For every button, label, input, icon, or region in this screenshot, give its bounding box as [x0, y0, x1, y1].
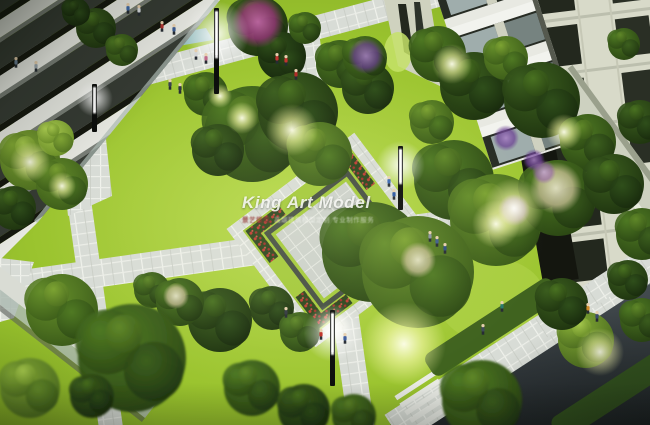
tree-clump [622, 39, 640, 57]
figurine-body [284, 310, 287, 315]
figurine-head [126, 3, 129, 6]
light-glow [208, 84, 232, 108]
figurine-body [178, 86, 181, 91]
tree-highlight [143, 276, 156, 289]
tree-highlight [631, 302, 646, 317]
person-figurine [586, 303, 589, 314]
figurine-head [443, 243, 446, 246]
figurine-body [160, 24, 163, 29]
tree-highlight [434, 148, 462, 176]
tree-clump [124, 342, 183, 401]
figurine-head [428, 231, 431, 234]
figurine-head [294, 69, 297, 72]
scale-model-photo: King Art Model 景艺模型高端建筑模型定制 专业制作服务 [0, 0, 650, 425]
person-figurine [204, 53, 207, 64]
tree-clump [364, 80, 393, 109]
tree [0, 358, 60, 418]
light-glow [266, 104, 318, 156]
lamp-light-core [399, 150, 401, 182]
figurine-legs [179, 91, 182, 94]
tree-clump [215, 310, 250, 345]
figurine-head [204, 53, 207, 56]
tree-highlight [47, 124, 60, 137]
tree-highlight [618, 264, 632, 278]
tree-highlight [205, 129, 223, 147]
tree-highlight [523, 70, 550, 97]
tree-highlight [15, 364, 36, 385]
tree-clump [214, 142, 243, 171]
figurine-body [294, 72, 297, 77]
person-figurine [319, 329, 322, 340]
person-figurine [387, 176, 390, 187]
figurine-body [284, 58, 287, 63]
figurine-head [178, 83, 181, 86]
blossom-purple [348, 38, 384, 74]
tree-highlight [204, 294, 226, 316]
person-figurine [294, 69, 297, 80]
person-figurine [194, 49, 197, 60]
figurine-legs [295, 77, 298, 80]
person-figurine [168, 79, 171, 90]
person-figurine [14, 57, 17, 68]
figurine-legs [285, 315, 288, 318]
figurine-legs [429, 239, 432, 242]
figurine-body [204, 56, 207, 61]
tree-highlight [261, 290, 276, 305]
figurine-body [443, 246, 446, 251]
figurine-body [194, 52, 197, 57]
figurine-body [137, 8, 140, 13]
figurine-legs [169, 87, 172, 90]
figurine-head [343, 333, 346, 336]
light-glow [10, 142, 50, 182]
tree-clump [53, 133, 73, 153]
figurine-body [392, 192, 395, 197]
figurine-head [481, 324, 484, 327]
blossom-cream [163, 283, 189, 309]
figurine-head [275, 53, 278, 56]
figurine-body [428, 234, 431, 239]
figurine-head [172, 24, 175, 27]
tree-clump [89, 389, 113, 413]
person-figurine [178, 83, 181, 94]
figurine-head [319, 329, 322, 332]
tree-highlight [421, 104, 436, 119]
person-figurine [284, 307, 287, 318]
figurine-legs [596, 319, 599, 322]
figurine-head [284, 55, 287, 58]
figurine-head [392, 189, 395, 192]
figurine-legs [205, 61, 208, 64]
lamp-light-core [215, 12, 217, 55]
figurine-body [172, 27, 175, 32]
tree-highlight [343, 398, 358, 413]
tree-highlight [616, 31, 627, 42]
person-figurine [392, 189, 395, 200]
person-figurine [443, 243, 446, 254]
light-glow [362, 302, 446, 386]
figurine-legs [344, 341, 347, 344]
figurine-body [586, 306, 589, 311]
tree-highlight [3, 190, 18, 205]
figurine-head [435, 236, 438, 239]
tree-clump [278, 49, 304, 75]
figurine-legs [285, 63, 288, 66]
tree-clump [469, 76, 506, 113]
person-figurine [595, 311, 598, 322]
light-glow [48, 172, 76, 200]
figurine-head [595, 311, 598, 314]
light-glow [472, 200, 520, 248]
figurine-legs [388, 184, 391, 187]
tree-clump [74, 8, 89, 23]
tree-highlight [44, 281, 69, 306]
person-figurine [428, 231, 431, 242]
tree-clump [26, 379, 59, 412]
tree-highlight [81, 378, 96, 393]
tree-highlight [495, 40, 510, 55]
tree-clump [248, 380, 279, 411]
figurine-head [387, 176, 390, 179]
figurine-body [595, 314, 598, 319]
person-figurine [343, 333, 346, 344]
person-figurine [500, 301, 503, 312]
tree-highlight [69, 1, 79, 11]
blossom-cream [400, 242, 436, 278]
figurine-head [14, 57, 17, 60]
tree-clump [315, 144, 350, 179]
tree-highlight [238, 366, 258, 386]
tree-highlight [195, 76, 210, 91]
figurine-body [14, 60, 17, 65]
tree-highlight [291, 389, 309, 407]
figurine-body [168, 82, 171, 87]
figurine-legs [482, 332, 485, 335]
figurine-head [194, 49, 197, 52]
figurine-legs [35, 69, 38, 72]
figurine-legs [436, 244, 439, 247]
tree-highlight [629, 213, 647, 231]
figurine-legs [161, 29, 164, 32]
figurine-head [500, 301, 503, 304]
tree-clump [120, 45, 138, 63]
tree-clump [11, 201, 35, 225]
figurine-body [435, 239, 438, 244]
lamp-light-core [331, 314, 333, 352]
figurine-body [275, 56, 278, 61]
figurine-head [284, 307, 287, 310]
light-glow [546, 114, 582, 150]
tree-highlight [114, 37, 125, 48]
figurine-legs [276, 61, 279, 64]
figurine-head [586, 303, 589, 306]
model-scene-svg [0, 0, 650, 425]
figurine-body [319, 332, 322, 337]
light-glow [432, 44, 472, 84]
tree-highlight [105, 315, 143, 353]
figurine-legs [501, 309, 504, 312]
figurine-body [126, 6, 129, 11]
figurine-body [500, 304, 503, 309]
light-glow [576, 328, 624, 376]
tree-highlight [599, 160, 620, 181]
figurine-body [481, 327, 484, 332]
tree-clump [303, 23, 321, 41]
figurine-legs [195, 57, 198, 60]
figurine-legs [127, 11, 130, 14]
tree-clump [558, 296, 587, 325]
person-figurine [34, 61, 37, 72]
tree-clump [625, 274, 647, 296]
blossom-purple [493, 125, 519, 151]
figurine-legs [15, 65, 18, 68]
person-figurine [126, 3, 129, 14]
figurine-legs [138, 13, 141, 16]
blossom-lilac [532, 160, 556, 184]
figurine-legs [444, 251, 447, 254]
figurine-body [343, 336, 346, 341]
tree-highlight [629, 104, 644, 119]
tree-clump [429, 115, 453, 139]
figurine-legs [587, 311, 590, 314]
person-figurine [172, 24, 175, 35]
figurine-body [387, 179, 390, 184]
figurine-legs [393, 197, 396, 200]
figurine-body [34, 64, 37, 69]
tree-highlight [278, 80, 306, 108]
person-figurine [284, 55, 287, 66]
figurine-legs [320, 337, 323, 340]
figurine-legs [173, 32, 176, 35]
tree-highlight [462, 368, 490, 396]
lamp-light-core [93, 88, 95, 112]
figurine-head [34, 61, 37, 64]
figurine-head [168, 79, 171, 82]
figurine-head [160, 21, 163, 24]
light-glow [226, 102, 258, 134]
tree-highlight [549, 283, 567, 301]
person-figurine [275, 53, 278, 64]
person-figurine [137, 5, 140, 16]
person-figurine [160, 21, 163, 32]
person-figurine [435, 236, 438, 247]
person-figurine [481, 324, 484, 335]
tree-highlight [290, 316, 304, 330]
figurine-head [137, 5, 140, 8]
tree-highlight [297, 15, 308, 26]
tree-clump [610, 175, 643, 208]
